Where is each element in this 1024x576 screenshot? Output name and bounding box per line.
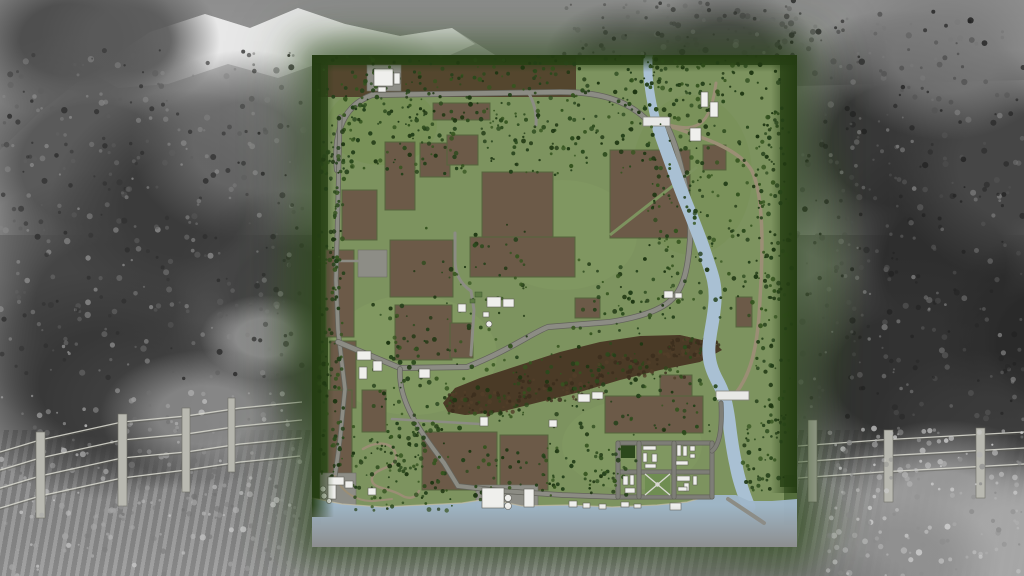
fence-left	[0, 398, 302, 518]
building	[345, 481, 353, 488]
building	[599, 504, 606, 509]
silo-tank	[327, 499, 332, 504]
village-building	[645, 464, 656, 468]
building	[569, 501, 577, 507]
building	[690, 128, 701, 141]
village-building	[677, 445, 681, 456]
fence-post	[118, 414, 127, 506]
village-building	[693, 476, 697, 485]
village-building	[630, 475, 634, 485]
farm-yard	[358, 250, 387, 277]
pda-map-overlay	[312, 55, 797, 547]
building	[374, 69, 393, 86]
scene	[0, 0, 1024, 576]
building	[373, 361, 382, 371]
building	[394, 73, 400, 84]
foliage-speckle	[826, 426, 1024, 576]
building	[378, 87, 386, 92]
field	[605, 396, 703, 433]
field	[390, 240, 453, 297]
shed	[470, 299, 475, 303]
building	[664, 291, 673, 298]
village-building	[676, 461, 688, 465]
building	[483, 312, 489, 317]
pda-map	[312, 55, 797, 547]
silo-tank	[320, 486, 326, 492]
fence-post	[228, 398, 235, 472]
field	[703, 145, 726, 170]
village-building	[690, 446, 695, 451]
building	[480, 417, 488, 426]
village-building	[621, 502, 629, 507]
building	[503, 299, 514, 307]
fence-wire-shadow	[798, 434, 1024, 448]
field	[500, 435, 548, 490]
building	[357, 351, 371, 360]
village-building	[652, 454, 657, 462]
building	[670, 503, 681, 510]
building	[368, 488, 376, 495]
fence-wire	[798, 432, 1024, 446]
building	[675, 293, 682, 298]
silo-tank	[486, 321, 492, 327]
building	[524, 489, 534, 507]
village-building	[643, 446, 656, 450]
field	[342, 190, 377, 240]
fence-post	[182, 408, 190, 492]
shed	[475, 292, 482, 297]
village-building	[625, 488, 635, 493]
building	[549, 420, 557, 427]
building	[419, 369, 430, 378]
building	[583, 503, 590, 508]
silo-tank	[321, 493, 327, 499]
village-building	[677, 476, 690, 481]
field	[482, 172, 553, 240]
building	[458, 304, 466, 312]
field	[736, 297, 752, 327]
silo-tank	[505, 495, 512, 502]
village-building	[683, 446, 687, 456]
field	[385, 142, 415, 210]
village-tree-square	[621, 444, 635, 458]
park-center	[655, 482, 659, 486]
building	[592, 392, 603, 399]
building	[578, 394, 590, 402]
village-building	[634, 504, 641, 508]
field	[575, 298, 600, 318]
building	[710, 102, 718, 117]
foliage-speckle	[3, 497, 303, 576]
fence-wire	[798, 448, 1024, 462]
village-building	[678, 487, 687, 491]
fence-post	[36, 432, 45, 518]
building	[328, 477, 344, 485]
village-building	[623, 476, 628, 485]
building	[487, 297, 501, 307]
field	[470, 237, 575, 277]
fence-post	[808, 420, 817, 502]
fence-post	[976, 428, 985, 498]
bridge	[643, 117, 670, 126]
building	[359, 367, 367, 379]
silo-tank	[505, 503, 512, 510]
village-building	[643, 453, 647, 462]
village-building	[690, 454, 695, 458]
field	[395, 305, 452, 360]
field	[362, 390, 386, 432]
building	[482, 488, 504, 508]
fence-wire-shadow	[798, 450, 1024, 464]
building	[701, 92, 708, 107]
bridge	[716, 391, 749, 400]
